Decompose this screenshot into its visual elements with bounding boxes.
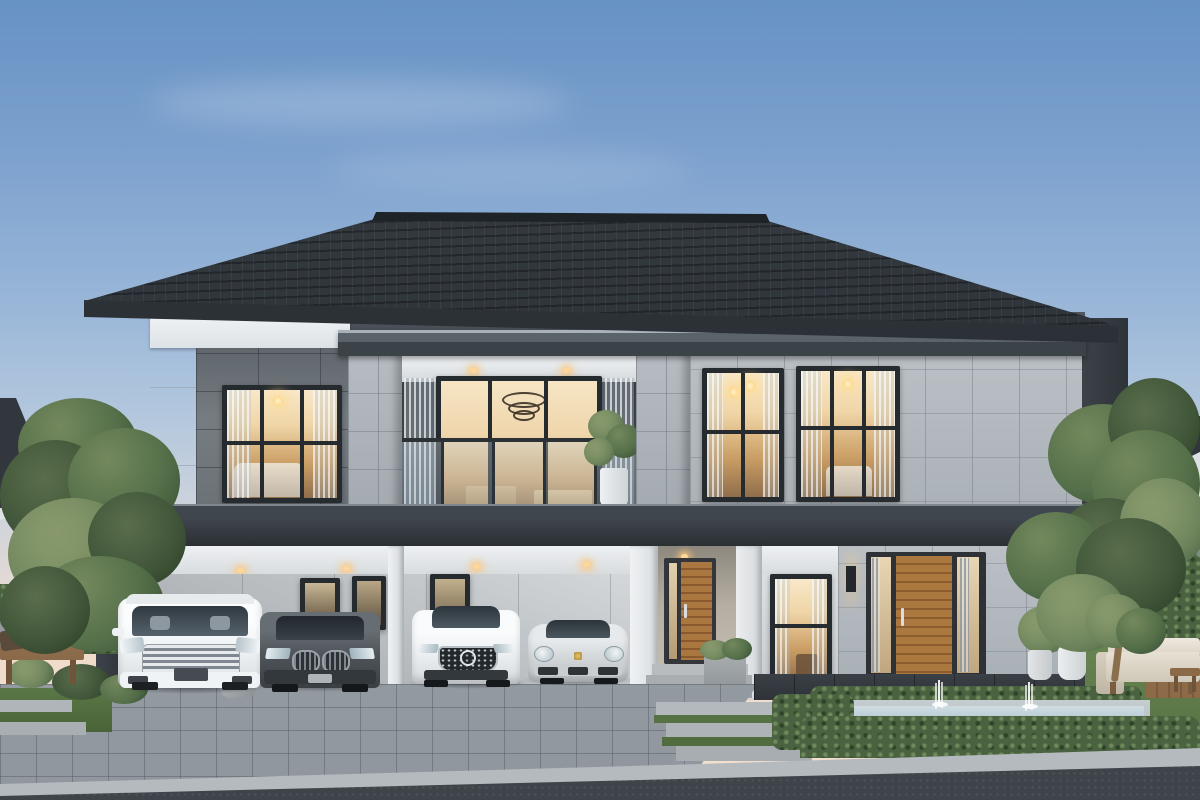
coffee-table-top [1170, 668, 1200, 676]
balcony-downlight [563, 368, 570, 373]
bench-leg [70, 660, 76, 684]
coupe-intake [568, 667, 588, 675]
coupe-wheel [594, 678, 618, 684]
sedan-windshield [432, 606, 500, 628]
window-mullion [830, 371, 834, 497]
coffee-table-leg [1174, 676, 1178, 692]
wood-door-panel [896, 556, 952, 674]
curtain-right [763, 373, 779, 497]
sedan-star-emblem [460, 650, 476, 666]
sedan-wheel [424, 680, 448, 687]
suv-wheel [272, 684, 298, 692]
railing-post [441, 438, 444, 508]
wall-sconce [846, 566, 856, 592]
floor-slab-band [94, 504, 1085, 546]
sports-coupe [526, 620, 630, 686]
suv-wheel [342, 684, 368, 692]
sedan-wheel [486, 680, 510, 687]
sedan [410, 604, 522, 688]
cloud [150, 80, 570, 126]
architectural-render-scene [0, 0, 1200, 800]
window-mullion [862, 371, 866, 497]
van-headlight-left [119, 637, 144, 654]
ground-floor-window [770, 574, 832, 686]
suv-skid-plate [308, 674, 332, 683]
sedan-headlight-right [493, 644, 515, 653]
railing-post [543, 438, 546, 508]
van-seat-silhouette [210, 616, 230, 630]
minivan [116, 594, 264, 690]
balcony-downlight [470, 368, 477, 373]
sidelight-curtain [872, 558, 880, 672]
door-handle [684, 604, 687, 618]
carport-downlight [583, 562, 590, 567]
bedroom-window-upper-left [222, 385, 342, 503]
sidelight-curtain [960, 558, 969, 672]
fountain-splash [932, 702, 948, 707]
ring-chandelier [513, 410, 535, 421]
van-wheel [222, 682, 248, 690]
coupe-headlight-left [534, 646, 554, 662]
carport-downlight [343, 566, 350, 571]
front-door-sidelight [668, 562, 678, 660]
balcony-plant-pot [600, 468, 628, 506]
carport-post [388, 546, 404, 694]
stepping-stone [0, 700, 72, 712]
chandelier-glow [272, 395, 284, 407]
coupe-intake [598, 667, 618, 675]
pendant-light [728, 386, 740, 398]
white-pot [1028, 650, 1052, 680]
suv [258, 608, 382, 692]
van-mirror [112, 628, 124, 636]
stone-window-chandelier [796, 366, 900, 502]
coupe-intake [538, 667, 558, 675]
curtain-left [775, 579, 790, 681]
pendant-light [744, 380, 756, 392]
van-headlight-right [235, 637, 260, 654]
stone-window-pendants [702, 368, 784, 502]
coupe-windshield [546, 620, 610, 638]
curtain-left [707, 373, 723, 497]
grass-joint [654, 715, 782, 723]
carport-downlight [237, 568, 244, 573]
tropical-plant [1116, 608, 1166, 654]
coupe-wheel [540, 678, 564, 684]
balcony-plant-foliage [584, 438, 614, 466]
window-mullion [741, 373, 745, 497]
railing-post [492, 438, 495, 508]
shrub [8, 658, 54, 688]
window-mullion [801, 426, 895, 430]
van-license-plate [174, 668, 208, 681]
stepping-stone [656, 702, 778, 715]
window-mullion [707, 430, 779, 434]
door-handle [901, 608, 904, 626]
van-wheel [132, 682, 158, 690]
curtain-left [801, 371, 822, 497]
sofa-leg [1110, 682, 1116, 694]
cloud [330, 150, 690, 190]
planter-shrub [722, 638, 752, 660]
van-roof [126, 594, 254, 604]
coupe-headlight-right [604, 646, 624, 662]
window-mullion [775, 624, 827, 628]
sedan-intake [424, 670, 508, 680]
fountain-splash [1022, 704, 1038, 709]
carport-downlight [473, 564, 480, 569]
chandelier-glow [842, 378, 854, 390]
coupe-emblem [574, 652, 582, 660]
sedan-headlight-left [417, 644, 439, 653]
window-mullion [227, 441, 337, 445]
tree-left-foliage [0, 566, 90, 654]
curtain-right [812, 579, 827, 681]
suv-headlight-left [265, 648, 291, 659]
suv-windshield [276, 616, 364, 640]
bench-leg [6, 660, 12, 684]
curtain-right [874, 371, 895, 497]
coffee-table-leg [1192, 676, 1196, 692]
stepping-stone [0, 722, 86, 735]
suv-headlight-right [349, 648, 375, 659]
van-seat-silhouette [150, 616, 170, 630]
